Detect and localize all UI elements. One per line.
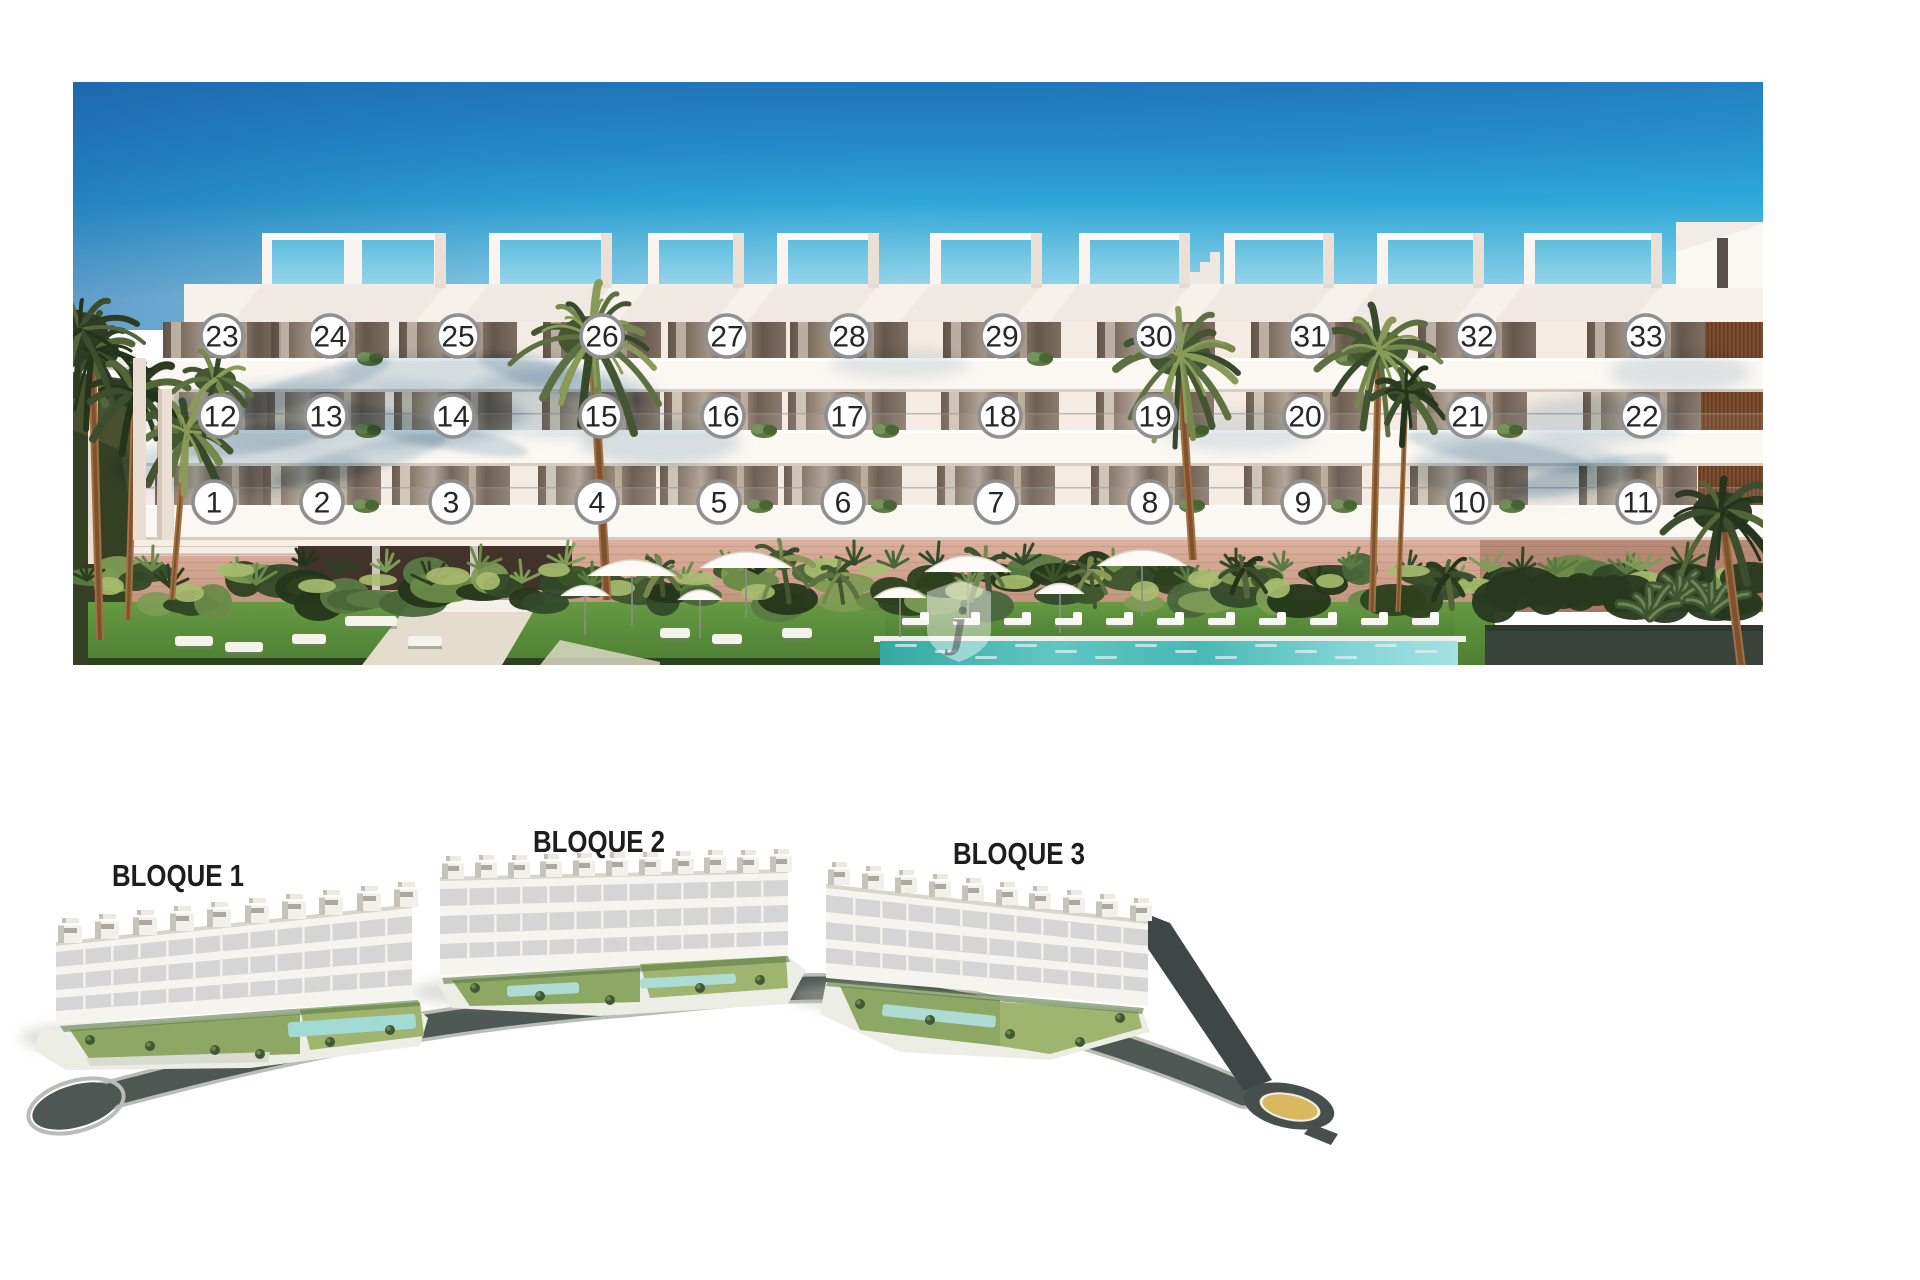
svg-text:16: 16 <box>706 401 739 434</box>
svg-text:13: 13 <box>309 401 342 434</box>
svg-text:9: 9 <box>1295 487 1312 520</box>
svg-text:33: 33 <box>1629 321 1662 354</box>
svg-text:7: 7 <box>988 487 1005 520</box>
svg-text:11: 11 <box>1622 487 1653 520</box>
svg-text:28: 28 <box>832 321 865 354</box>
svg-text:12: 12 <box>203 401 236 434</box>
svg-text:30: 30 <box>1139 321 1172 354</box>
svg-text:10: 10 <box>1452 487 1485 520</box>
svg-text:20: 20 <box>1288 401 1321 434</box>
svg-text:21: 21 <box>1451 401 1484 434</box>
svg-text:31: 31 <box>1293 321 1326 354</box>
svg-text:17: 17 <box>830 401 863 434</box>
svg-text:29: 29 <box>985 321 1018 354</box>
svg-text:23: 23 <box>205 321 238 354</box>
svg-text:5: 5 <box>711 487 728 520</box>
svg-text:BLOQUE 1: BLOQUE 1 <box>112 858 244 893</box>
svg-text:6: 6 <box>835 487 852 520</box>
svg-text:27: 27 <box>710 321 743 354</box>
svg-text:19: 19 <box>1138 401 1171 434</box>
svg-text:22: 22 <box>1625 401 1658 434</box>
svg-text:24: 24 <box>313 321 346 354</box>
svg-text:25: 25 <box>441 321 474 354</box>
svg-text:3: 3 <box>443 487 460 520</box>
svg-text:4: 4 <box>589 487 606 520</box>
svg-text:14: 14 <box>436 401 469 434</box>
svg-text:2: 2 <box>314 487 331 520</box>
svg-text:15: 15 <box>584 401 617 434</box>
svg-text:18: 18 <box>983 401 1016 434</box>
svg-text:BLOQUE 3: BLOQUE 3 <box>953 836 1085 871</box>
svg-text:26: 26 <box>585 321 618 354</box>
svg-text:1: 1 <box>206 487 223 520</box>
svg-text:32: 32 <box>1460 321 1493 354</box>
svg-text:8: 8 <box>1142 487 1159 520</box>
